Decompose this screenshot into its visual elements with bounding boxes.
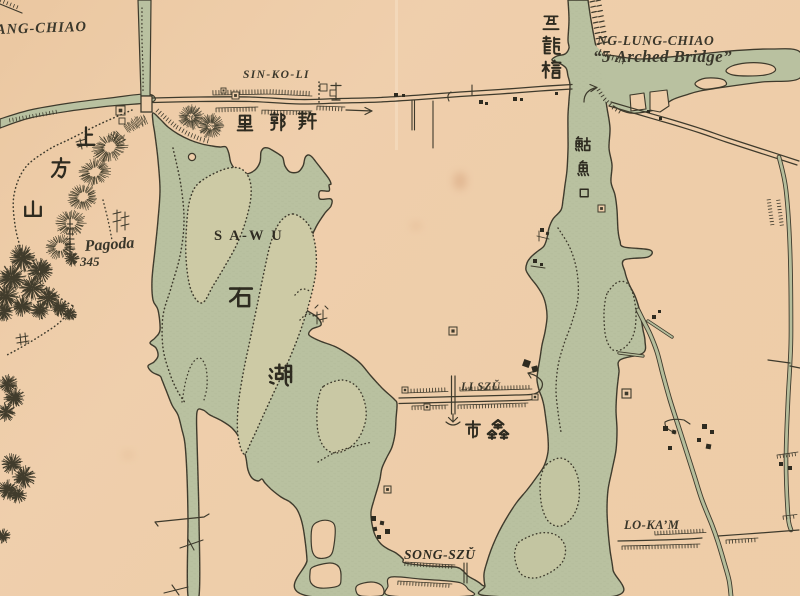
svg-text:345: 345	[79, 254, 100, 269]
svg-text:Pagoda: Pagoda	[83, 235, 135, 256]
svg-text:SIN-KO-LI: SIN-KO-LI	[243, 69, 310, 81]
svg-text:LO-KA’M: LO-KA’M	[623, 518, 680, 532]
svg-text:LI SZŬ: LI SZŬ	[460, 379, 501, 393]
svg-text:SONG-SZŬ: SONG-SZŬ	[404, 547, 476, 562]
svg-text:“5 Arched Bridge”: “5 Arched Bridge”	[593, 47, 732, 66]
svg-text:S A-W U: S A-W U	[214, 228, 284, 244]
svg-text:NG-LUNG-CHIAO: NG-LUNG-CHIAO	[596, 33, 714, 48]
svg-text:ANG-CHIAO: ANG-CHIAO	[0, 19, 87, 38]
